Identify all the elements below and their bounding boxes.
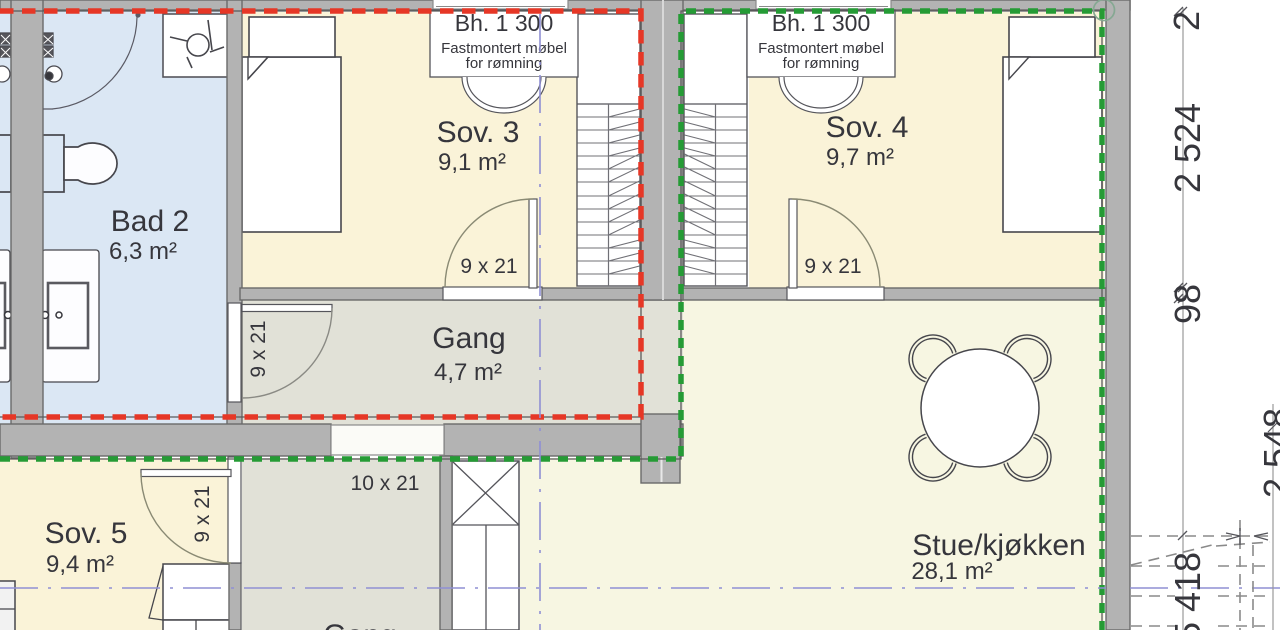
svg-text:9,7 m²: 9,7 m² <box>826 144 894 171</box>
svg-text:2 548: 2 548 <box>1256 408 1280 498</box>
svg-text:Sov. 4: Sov. 4 <box>826 111 909 144</box>
svg-text:Bh. 1 300: Bh. 1 300 <box>772 10 870 36</box>
svg-text:9 x 21: 9 x 21 <box>247 320 270 377</box>
svg-text:Sov. 3: Sov. 3 <box>437 116 520 149</box>
svg-text:9,4 m²: 9,4 m² <box>46 551 114 578</box>
svg-text:9 x 21: 9 x 21 <box>804 255 861 278</box>
svg-text:5 418: 5 418 <box>1167 552 1208 630</box>
svg-text:Gang: Gang <box>432 322 505 355</box>
svg-text:28,1 m²: 28,1 m² <box>911 558 992 585</box>
svg-text:98: 98 <box>1167 284 1208 324</box>
svg-text:2 524: 2 524 <box>1167 103 1208 193</box>
svg-text:for rømning: for rømning <box>783 55 860 72</box>
svg-text:9 x 21: 9 x 21 <box>460 255 517 278</box>
svg-text:Bad 2: Bad 2 <box>111 205 189 238</box>
svg-text:Bh. 1 300: Bh. 1 300 <box>455 10 553 36</box>
svg-text:for rømning: for rømning <box>466 55 543 72</box>
svg-text:4,7 m²: 4,7 m² <box>434 359 502 386</box>
svg-text:Sov. 5: Sov. 5 <box>45 517 128 550</box>
svg-text:10 x 21: 10 x 21 <box>351 472 420 495</box>
svg-text:Gang: Gang <box>323 619 396 630</box>
svg-text:2 5: 2 5 <box>1166 0 1207 31</box>
svg-text:9,1 m²: 9,1 m² <box>438 149 506 176</box>
svg-text:9 x 21: 9 x 21 <box>191 485 214 542</box>
svg-text:6,3 m²: 6,3 m² <box>109 238 177 265</box>
